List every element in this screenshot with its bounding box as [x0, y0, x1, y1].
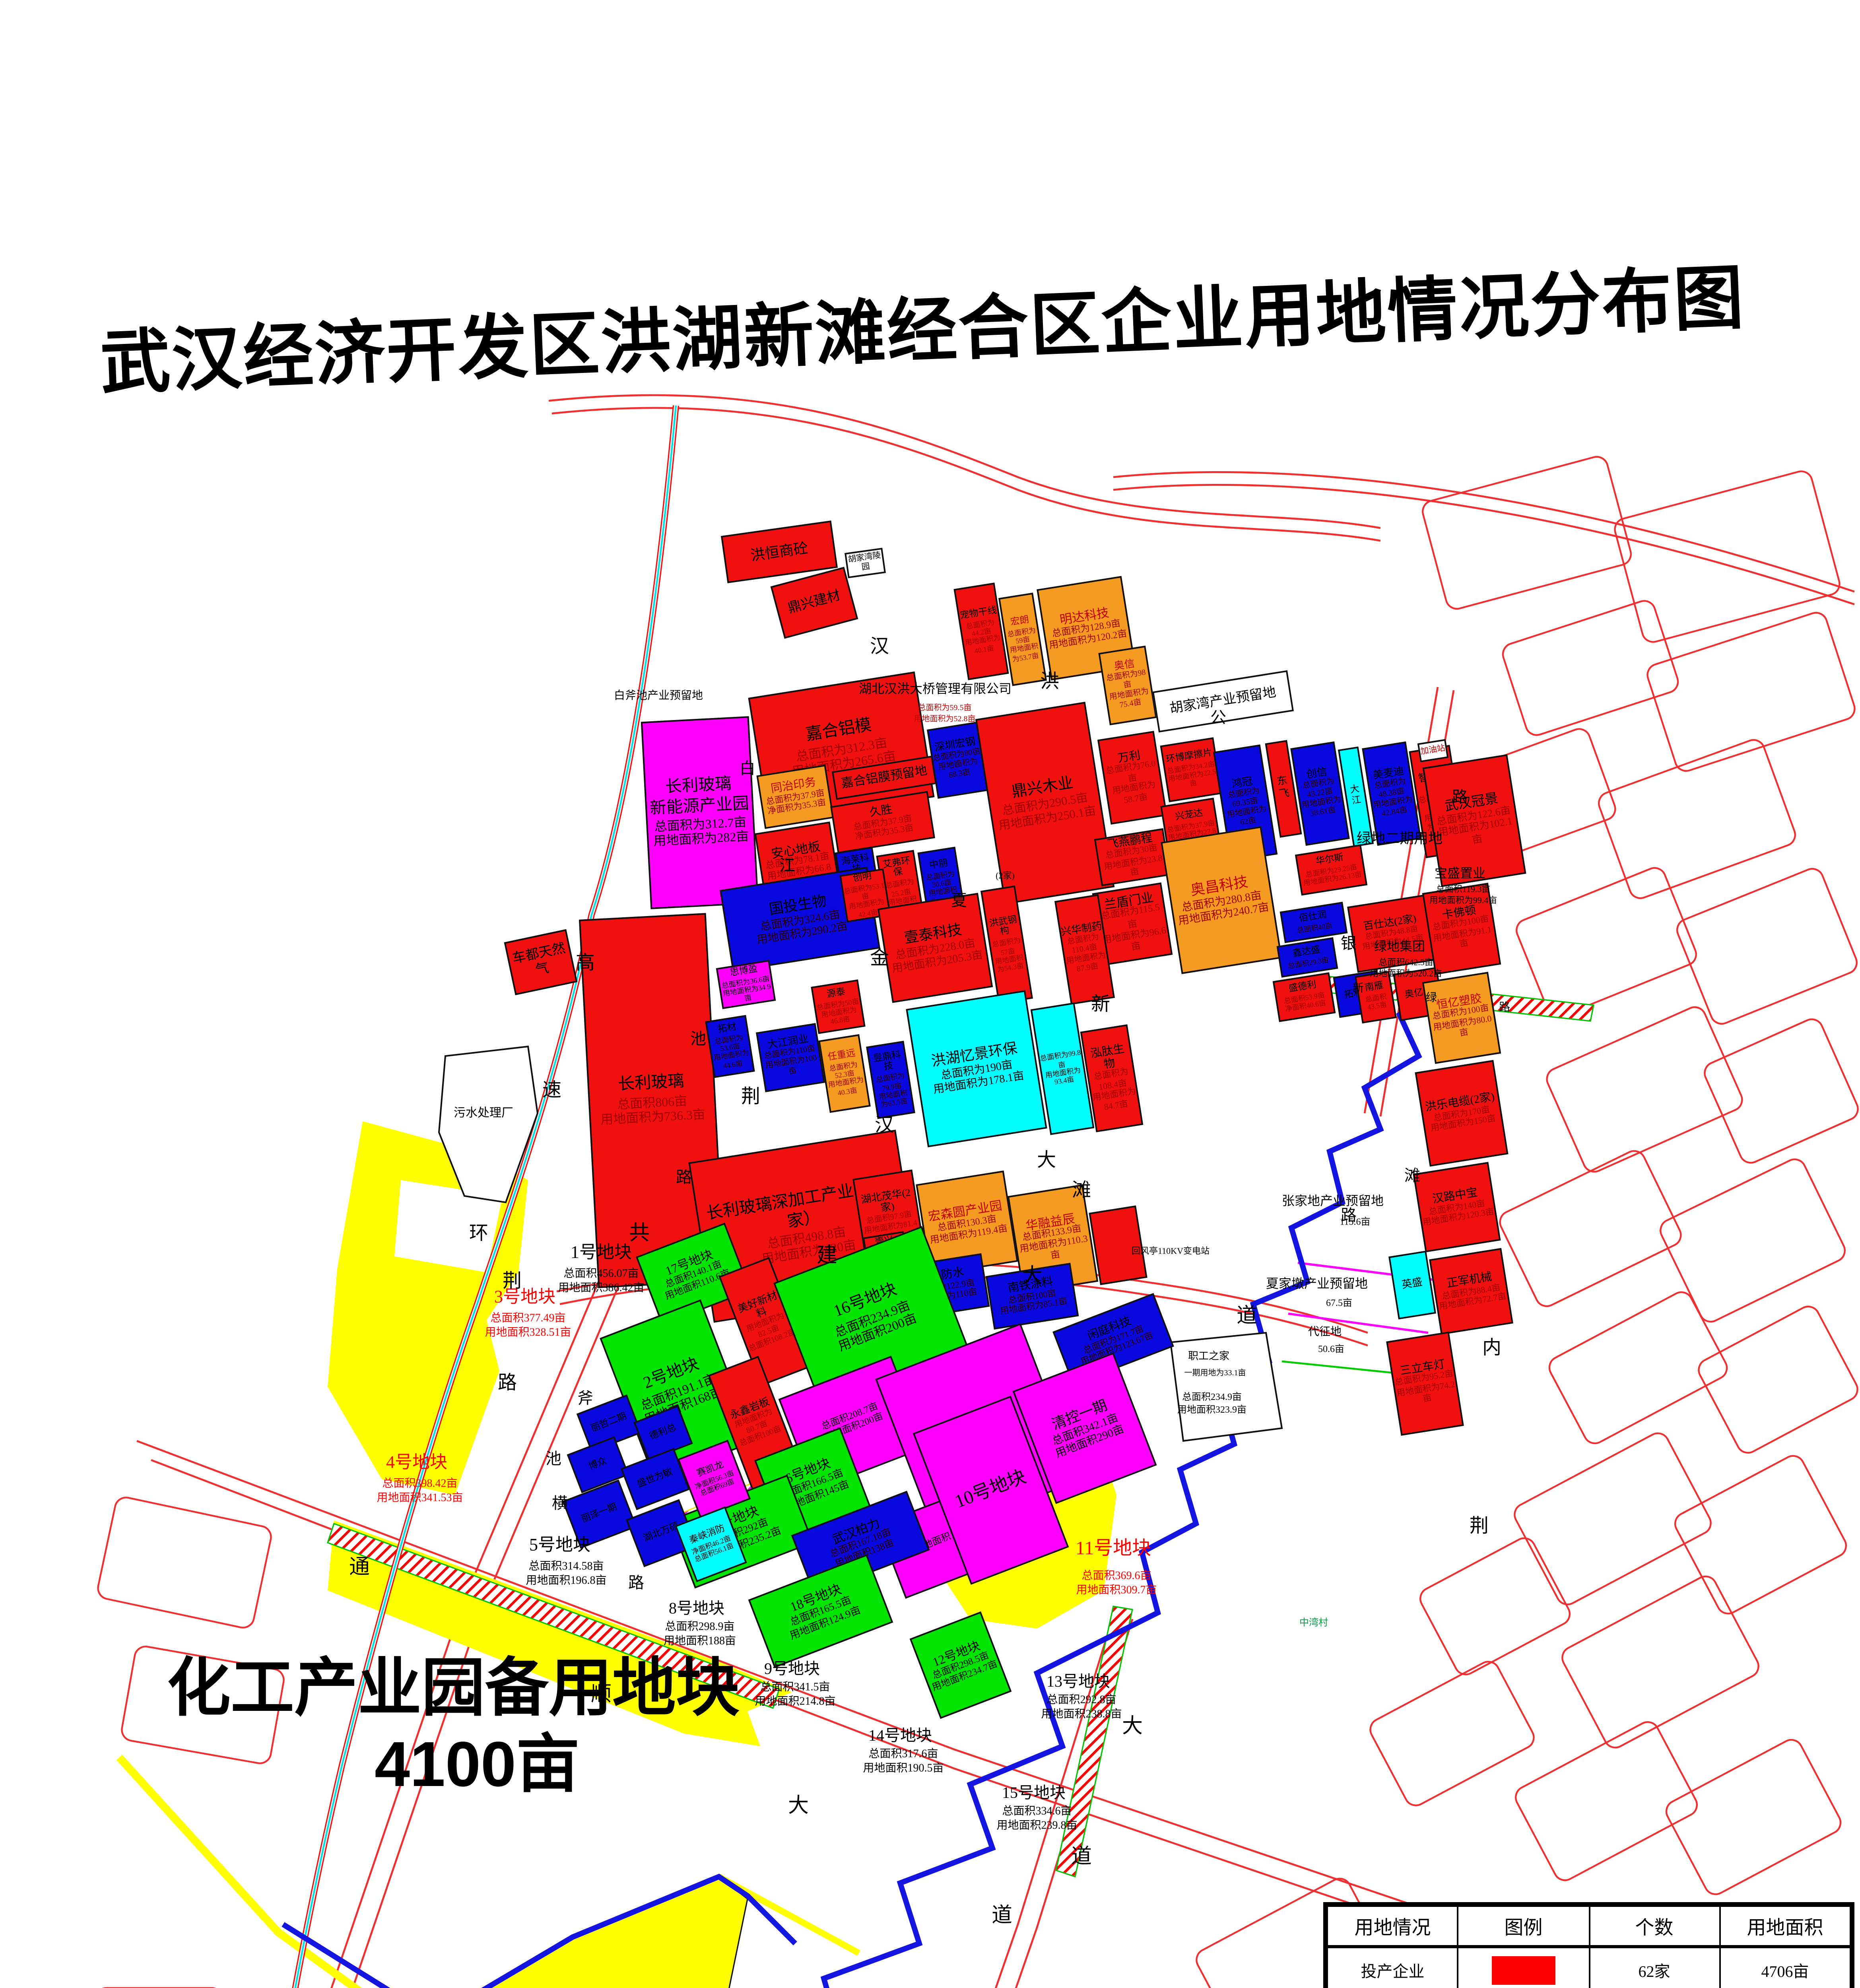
plot-name: 英盛: [1401, 1277, 1423, 1293]
map-label-夏: 夏: [951, 891, 967, 912]
map-label-大: 大: [1122, 1714, 1143, 1741]
map-label-白斧池产业预留地: 白斧池产业预留地: [614, 689, 703, 704]
empty-parcel: [1662, 1736, 1844, 1898]
legend-row: 投产企业62家4706亩: [1327, 1947, 1850, 1988]
map-label-荆: 荆: [741, 1085, 760, 1110]
map-label-白: 白: [740, 759, 755, 780]
plot-胡家湾陵园: 胡家湾陵园: [845, 548, 886, 579]
map-label-池: 池: [546, 1450, 561, 1470]
plot-name: 洪恒商砼: [749, 540, 809, 565]
map-label-总面积314.58亩: 总面积314.58亩 用地面积196.8亩: [526, 1560, 607, 1589]
plot-name: 长利玻璃: [618, 1074, 685, 1097]
plot-name: 车都天然气: [508, 940, 573, 984]
map-label-内: 内: [1482, 1336, 1501, 1361]
map-label-池: 池: [690, 1030, 706, 1050]
reserve-area-caption-line2: 4100亩: [375, 1724, 580, 1807]
map-label-通: 通: [349, 1555, 370, 1582]
empty-parcel: [1367, 1658, 1538, 1809]
map-label-中湾村: 中湾村: [1299, 1619, 1328, 1631]
empty-parcel: [1674, 866, 1860, 1027]
map-label-大: 大: [1037, 1149, 1056, 1173]
map-label-新: 新: [1091, 993, 1110, 1017]
map-page: 武汉经济开发区洪湖新滩经合区企业用地情况分布图 化工产业园备用地块 4100亩 …: [0, 0, 1860, 1988]
map-label-8号地块: 8号地块: [669, 1599, 724, 1620]
empty-parcel: [1545, 1288, 1731, 1447]
empty-parcel: [1596, 737, 1798, 901]
plot-name: 加油站: [1420, 744, 1446, 757]
map-label-9号地块: 9号地块: [764, 1660, 820, 1680]
map-label-总面积341.5亩: 总面积341.5亩 用地面积214.8亩: [755, 1681, 836, 1710]
empty-parcel: [1416, 1534, 1573, 1678]
empty-parcel: [1544, 1004, 1746, 1175]
legend-area: 4706亩: [1720, 1947, 1850, 1988]
map-label-路: 路: [628, 1574, 644, 1594]
plot-name: 胡家湾陵园: [847, 551, 884, 575]
plot-思博盈: 思博盈总面积为36.6亩用地面积为34.9亩: [716, 960, 776, 1009]
plot-大江润业: 大江润业总面积为110亩用地面积为100亩: [756, 1023, 825, 1092]
map-label-路: 路: [1499, 1001, 1510, 1015]
empty-parcel: [1644, 610, 1857, 774]
empty-parcel: [1496, 1147, 1684, 1310]
map-label-总面积为59.5亩: 总面积为59.5亩 用地面积为52.8亩: [914, 705, 975, 726]
map-label-13号地块: 13号地块: [1046, 1672, 1110, 1693]
plot-name: 博众: [587, 1456, 609, 1473]
legend-table: 用地情况图例个数用地面积 投产企业62家4706亩在建企业24家1593亩待盘活…: [1323, 1902, 1854, 1988]
plot-长利玻璃: 长利玻璃 新能源产业园总面积为312.7亩用地面积为282亩: [641, 716, 759, 909]
empty-parcel: [1701, 1016, 1860, 1167]
map-label-横: 横: [552, 1494, 568, 1515]
reserve-area-caption-line1: 化工产业园备用地块: [167, 1648, 740, 1730]
legend-swatch-red: [1492, 1955, 1555, 1984]
legend-row-label: 投产企业: [1327, 1947, 1458, 1988]
map-label-5号地块: 5号地块: [529, 1534, 590, 1557]
map-label-4号地块: 4号地块: [386, 1452, 447, 1474]
map-label-总面积642.5亩: 总面积642.5亩 用地面积为520.2亩: [1370, 959, 1442, 981]
map-label-洪: 洪: [1040, 670, 1059, 695]
map-label-汉: 汉: [875, 1114, 894, 1138]
legend-header: 个数: [1589, 1906, 1720, 1947]
legend-count: 62家: [1589, 1947, 1720, 1988]
map-label-1号地块: 1号地块: [571, 1242, 632, 1264]
map-label-斧: 斧: [577, 1389, 593, 1410]
plot-正军机械: 正军机械总面积为88.4亩用地面积为72.7亩: [1429, 1248, 1513, 1335]
map-label-绿地二期用地: 绿地二期用地: [1357, 831, 1443, 849]
map-label-环: 环: [469, 1222, 488, 1246]
plot-环博摩擦片: 环博摩擦片总面积为34.2亩用地面积为22.5亩: [1160, 737, 1223, 802]
plot-洪乐电缆(2家): 洪乐电缆(2家)总面积为170亩用地面积为150亩: [1415, 1060, 1508, 1167]
map-label-15号地块: 15号地块: [1002, 1784, 1066, 1804]
map-label-总面积377.49亩: 总面积377.49亩 用地面积328.51亩: [485, 1312, 571, 1341]
map-label-荆: 荆: [1470, 1514, 1489, 1539]
map-label-速: 速: [542, 1079, 561, 1103]
map-label-职工之家: 职工之家: [1188, 1351, 1229, 1365]
map-label-11号地块: 11号地块: [1076, 1537, 1151, 1561]
map-label-道: 道: [992, 1903, 1012, 1930]
map-label-顺: 顺: [591, 1682, 612, 1709]
map-label-绿地集团: 绿地集团: [1374, 940, 1425, 956]
map-label-回风亭110KV变电站: 回风亭110KV变电站: [1132, 1248, 1210, 1259]
empty-parcel: [1500, 598, 1681, 738]
plot-同治印务: 同治印务总面积为37.9亩净面积为35.3亩: [756, 765, 834, 829]
map-label-新: 新: [1353, 982, 1364, 996]
map-label-大: 大: [788, 1793, 809, 1820]
expansion-boundary-yellow-line: [119, 1757, 417, 1988]
map-label-共: 共: [629, 1221, 650, 1248]
map-label-江: 江: [779, 856, 795, 877]
map-label-总面积292.8亩: 总面积292.8亩 用地面积238.8亩: [1041, 1694, 1122, 1723]
map-label-总面积334.6亩: 总面积334.6亩 用地面积239.8亩: [997, 1805, 1078, 1834]
map-label-总面积234.9亩: 总面积234.9亩 用地面积323.9亩: [1177, 1394, 1246, 1418]
map-label-(2家): (2家): [996, 872, 1015, 884]
map-label-路: 路: [1341, 1206, 1357, 1227]
empty-parcel: [1559, 1573, 1763, 1751]
map-label-湖北汉洪大桥管理有限公司: 湖北汉洪大桥管理有限公司: [859, 682, 1012, 699]
legend-header: 用地面积: [1720, 1906, 1850, 1947]
workers-home-outline: [1171, 1333, 1282, 1441]
map-label-50.6亩: 50.6亩: [1318, 1345, 1344, 1358]
plot-源泰: 源泰总面积为50亩用地面积为46.8亩: [811, 979, 865, 1034]
plot-name: 10号地块: [952, 1467, 1029, 1514]
map-label-滩: 滩: [1072, 1179, 1091, 1204]
plot-恒亿塑胶: 恒亿塑胶总面积为100亩用地面积为80.0亩: [1422, 972, 1501, 1064]
map-label-高: 高: [576, 951, 595, 976]
plot-name: 大江: [1345, 784, 1366, 809]
map-label-银: 银: [1341, 934, 1357, 955]
map-label-路: 路: [676, 1168, 692, 1189]
empty-parcel: [1657, 1155, 1848, 1325]
map-label-总面积119.3亩: 总面积119.3亩 用地面积为99.4亩: [1429, 885, 1497, 908]
plot-name: 盛世为敏: [636, 1467, 674, 1491]
map-label-绿: 绿: [1426, 992, 1437, 1006]
plot-area-text: 用地面积为736.3亩: [600, 1108, 706, 1128]
legend-swatch-cell: [1458, 1947, 1589, 1988]
empty-parcel: [1612, 469, 1842, 645]
plot-name: 德利总: [648, 1423, 678, 1443]
empty-parcel: [1695, 1303, 1860, 1456]
map-label-金: 金: [870, 947, 889, 971]
map-label-总面积298.9亩: 总面积298.9亩 用地面积188亩: [664, 1621, 736, 1650]
plot-壹泰科技: 壹泰科技总面积为228.0亩用地面积为205.3亩: [878, 893, 993, 1003]
plot-area-text: 用地面积为53.7亩: [1008, 642, 1042, 664]
plot-汉路中宝: 汉路中宝总面积为140亩用地面积为120.3亩: [1413, 1162, 1501, 1252]
plot-name: 东飞: [1272, 775, 1295, 802]
map-label-一期用地为33.1亩: 一期用地为33.1亩: [1184, 1371, 1246, 1381]
empty-parcel: [96, 1495, 273, 1629]
map-label-67.5亩: 67.5亩: [1326, 1299, 1352, 1312]
map-label-建: 建: [817, 1243, 837, 1270]
plot-盛德利: 盛德利总面积53.9亩净面积40.6亩: [1273, 972, 1336, 1022]
map-label-道: 道: [1071, 1844, 1092, 1871]
map-label-污水处理厂: 污水处理厂: [454, 1106, 513, 1121]
plot-name: 长利玻璃 新能源产业园: [648, 776, 749, 820]
plot-name: 湖北万硕: [642, 1521, 681, 1545]
map-label-宝盛置业: 宝盛置业: [1435, 866, 1485, 883]
map-label-公: 公: [1210, 709, 1226, 729]
map-label-大: 大: [1022, 1264, 1043, 1291]
map-label-道: 道: [1237, 1303, 1257, 1330]
plot-area-text: 总面积43.5亩: [1359, 992, 1394, 1013]
plot-拓材: 拓材总面积为53.6亩用地面积为44.6亩: [705, 1015, 755, 1078]
map-label-荆: 荆: [503, 1270, 522, 1294]
legend-header: 图例: [1458, 1906, 1589, 1947]
legend-header: 用地情况: [1327, 1906, 1458, 1947]
map-label-总面积398.42亩: 总面积398.42亩 用地面积341.53亩: [377, 1477, 463, 1507]
map-label-总面积317.6亩: 总面积317.6亩 用地面积190.5亩: [863, 1748, 944, 1777]
map-label-汉: 汉: [870, 635, 889, 660]
map-label-滩: 滩: [1404, 1167, 1420, 1187]
map-label-代征地: 代征地: [1308, 1326, 1342, 1340]
map-label-总面积456.07亩: 总面积456.07亩 用地面积386.42亩: [558, 1268, 645, 1297]
plot-name: 丽哲二期: [590, 1411, 628, 1435]
road-line: [1113, 485, 1854, 604]
empty-parcel: [1671, 1452, 1850, 1617]
map-label-路: 路: [498, 1371, 517, 1396]
map-label-夏家墩产业预留地: 夏家墩产业预留地: [1266, 1277, 1368, 1293]
map-label-张家地产业预留地: 张家地产业预留地: [1282, 1194, 1384, 1211]
road-line: [1113, 472, 1854, 592]
plot-奥昌科技: 奥昌科技总面积为280.8亩用地面积为240.7亩: [1161, 826, 1282, 974]
plot-洪湖忆景环保: 洪湖忆景环保总面积为190亩用地面积为178.1亩: [906, 990, 1047, 1147]
plot-name: 丽泽一期: [580, 1502, 619, 1526]
plot-name: 鼎兴建材: [786, 588, 843, 617]
map-label-14号地块: 14号地块: [868, 1726, 932, 1747]
empty-parcel: [1511, 1429, 1715, 1608]
map-label-路: 路: [1452, 788, 1468, 809]
map-label-总面积369.6亩: 总面积369.6亩 用地面积309.7亩: [1076, 1570, 1157, 1599]
